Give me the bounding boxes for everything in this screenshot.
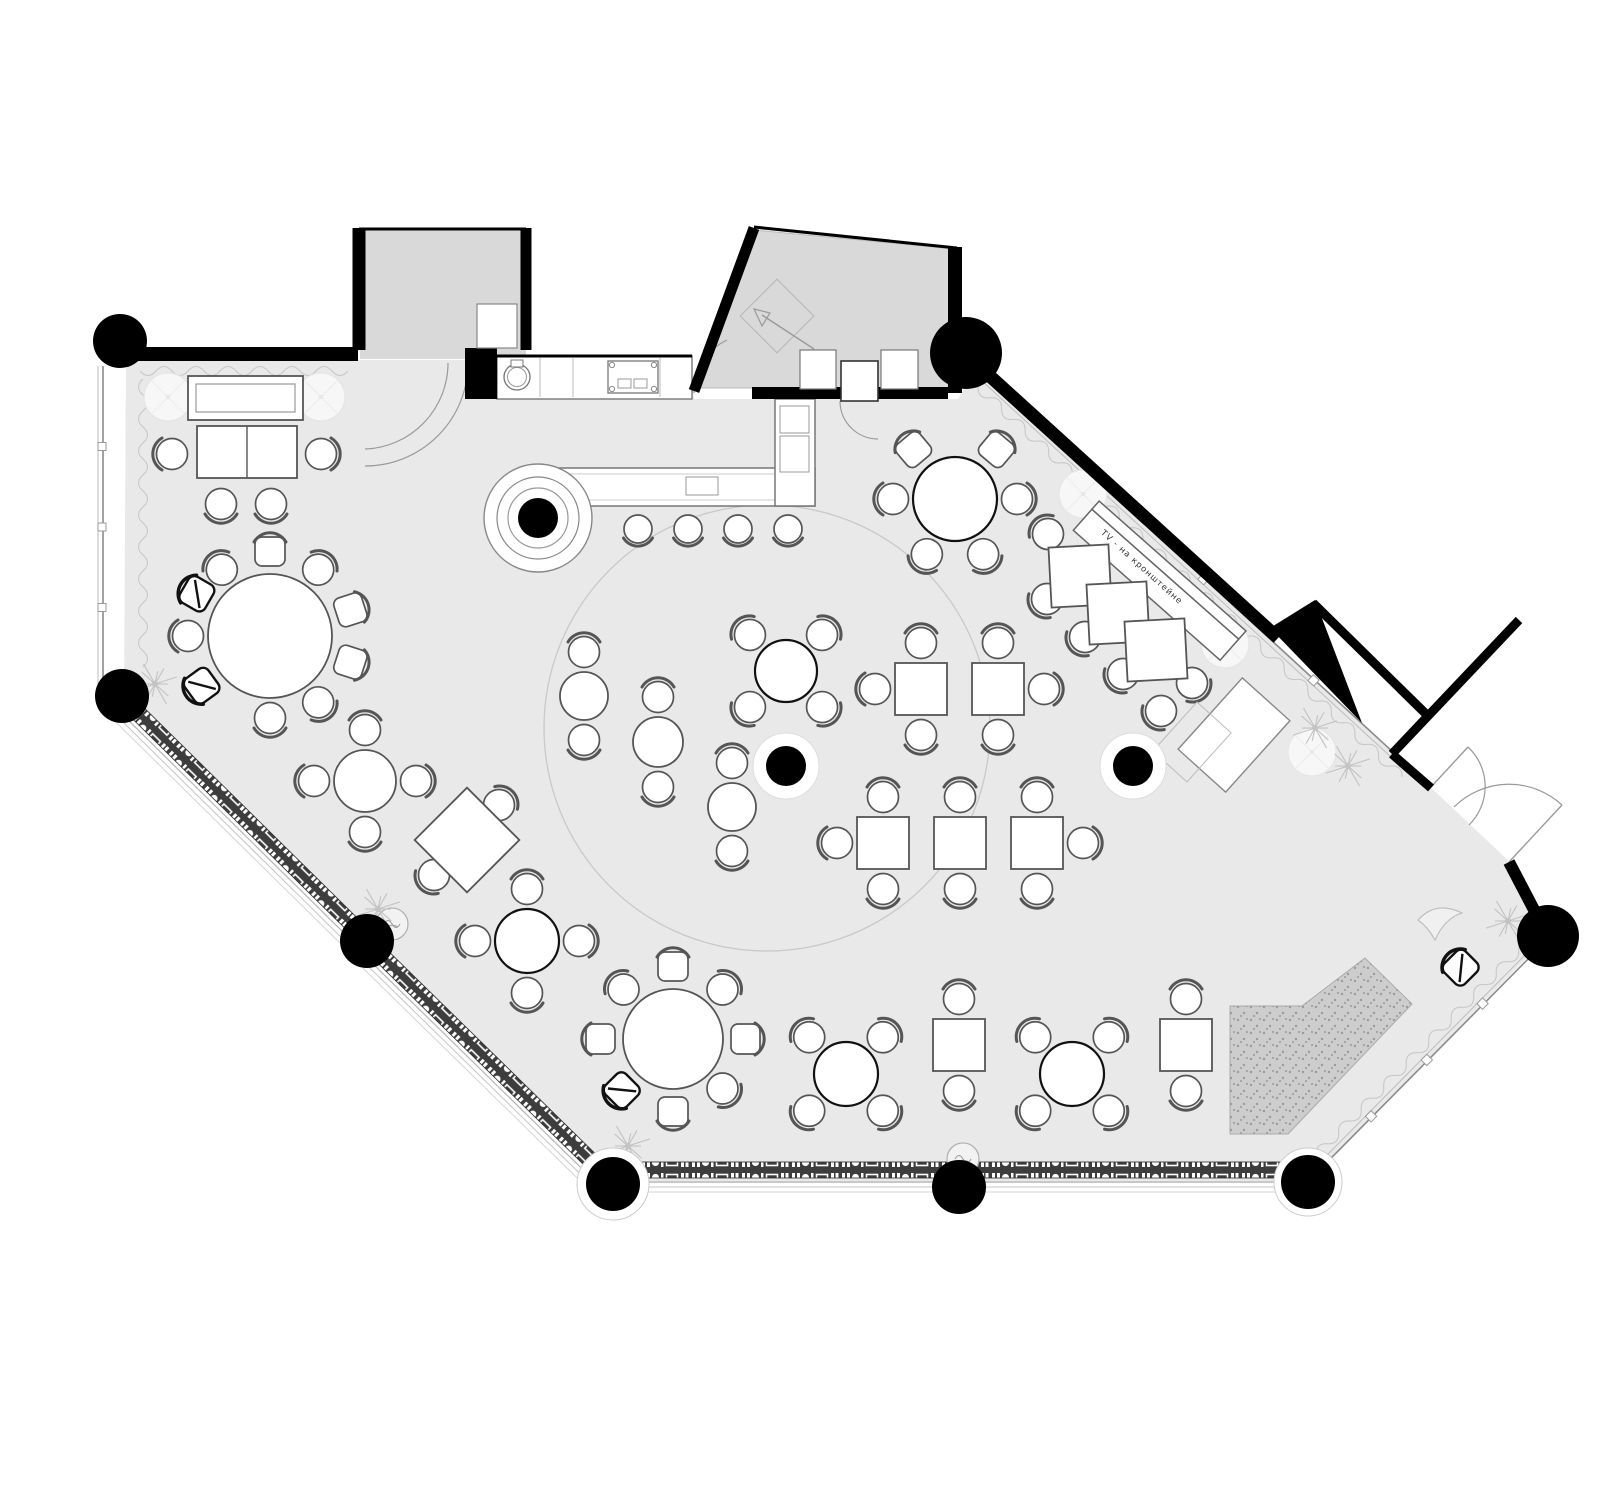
armchair	[657, 1097, 689, 1130]
mullion-tick	[98, 443, 106, 451]
chair-seat	[945, 874, 976, 905]
bar-stool	[724, 515, 753, 546]
bar-stool	[674, 515, 703, 546]
chair	[905, 720, 937, 755]
chair	[1068, 827, 1103, 859]
chair	[867, 874, 899, 909]
chair-seat	[945, 782, 976, 813]
window-glazing	[98, 366, 106, 688]
wall-block	[465, 348, 497, 399]
round-dining-table	[708, 783, 756, 831]
structural-column	[932, 1160, 986, 1214]
chair	[349, 711, 381, 746]
chair-seat	[350, 715, 381, 746]
chair-seat	[401, 766, 432, 797]
chair	[716, 836, 748, 871]
chair-seat	[1171, 984, 1202, 1015]
lamp-center	[166, 395, 170, 399]
square-dining-table	[1011, 817, 1063, 869]
square-dining-table	[895, 663, 947, 715]
chair	[716, 744, 748, 779]
structural-column	[586, 1157, 640, 1211]
stool-seat	[774, 515, 802, 543]
chair	[856, 673, 891, 705]
chair	[1002, 483, 1037, 515]
bar-column	[518, 498, 558, 538]
chair-seat	[717, 748, 748, 779]
door-swing-arc	[1454, 784, 1562, 807]
chair-seat	[512, 978, 543, 1009]
stool-seat	[724, 515, 752, 543]
armchair	[582, 1023, 615, 1055]
door-leaf	[1509, 805, 1562, 862]
round-dining-table	[633, 717, 683, 767]
square-dining-table	[933, 1019, 985, 1071]
chair	[944, 778, 976, 813]
chair	[153, 438, 188, 470]
chair-seat	[256, 489, 287, 520]
bar-stool	[774, 515, 803, 546]
chair	[306, 438, 341, 470]
lamp-center	[1081, 492, 1085, 496]
chair	[642, 678, 674, 713]
chair-seat	[569, 725, 600, 756]
chair	[867, 778, 899, 813]
door-swing-arc	[1468, 747, 1485, 825]
chair	[982, 720, 1014, 755]
bar-tray	[686, 477, 718, 495]
round-dining-table	[1040, 1042, 1104, 1106]
chair	[905, 624, 937, 659]
structural-column	[95, 669, 149, 723]
chair-seat	[1022, 874, 1053, 905]
chair	[564, 925, 599, 957]
chair	[568, 633, 600, 668]
chair	[401, 765, 436, 797]
chair	[511, 978, 543, 1013]
wall-segment	[1392, 620, 1519, 754]
lamp-center	[319, 395, 323, 399]
chair-seat	[1171, 1076, 1202, 1107]
chair	[349, 817, 381, 852]
bar-shelf	[780, 406, 809, 433]
chair	[1021, 778, 1053, 813]
chair-seat	[157, 439, 188, 470]
chair	[1170, 980, 1202, 1015]
structural-column	[930, 317, 1002, 389]
chair-seat	[255, 537, 285, 566]
chair-seat	[944, 1076, 975, 1107]
chair-seat	[983, 628, 1014, 659]
round-dining-table	[623, 989, 723, 1089]
entrance-door-leaf	[841, 361, 878, 401]
ceiling-lamp-icon	[144, 373, 192, 421]
door-leaf	[1431, 747, 1468, 787]
chair	[943, 980, 975, 1015]
lamp-center	[1310, 750, 1314, 754]
stool-seat	[674, 515, 702, 543]
chair-seat	[173, 621, 204, 652]
chair-seat	[944, 984, 975, 1015]
floor-plan-canvas: TV - на кронштейне	[40, 16, 1600, 1469]
chair	[254, 703, 286, 738]
chair-seat	[868, 782, 899, 813]
chair-seat	[299, 766, 330, 797]
alcove-cabinet	[477, 304, 517, 348]
round-dining-table	[208, 574, 332, 698]
round-dining-table	[560, 672, 608, 720]
entry-bench	[800, 350, 836, 389]
sofa	[188, 376, 303, 420]
chair-seat	[512, 874, 543, 905]
square-dining-table	[934, 817, 986, 869]
chair-seat	[206, 489, 237, 520]
chair	[511, 870, 543, 905]
chair-seat	[860, 674, 891, 705]
armchair	[731, 1023, 764, 1055]
structural-column	[766, 746, 806, 786]
chair-seat	[460, 926, 491, 957]
chair-seat	[906, 628, 937, 659]
chair-seat	[643, 772, 674, 803]
range-equipment	[608, 361, 658, 393]
chair-seat	[586, 1024, 615, 1054]
chair	[818, 827, 853, 859]
round-dining-table	[334, 750, 396, 812]
chair-seat	[658, 1097, 688, 1126]
chair-seat	[1068, 828, 1099, 859]
chair-seat	[569, 637, 600, 668]
chair	[456, 925, 491, 957]
chair-seat	[822, 828, 853, 859]
chair-seat	[1029, 674, 1060, 705]
round-dining-table	[814, 1042, 878, 1106]
chair-seat	[564, 926, 595, 957]
mullion-tick	[98, 604, 106, 612]
round-dining-table	[755, 640, 817, 702]
chair	[295, 765, 330, 797]
structural-column	[1517, 905, 1579, 967]
chair-seat	[983, 720, 1014, 751]
faucet	[511, 360, 523, 367]
chair	[568, 725, 600, 760]
chair-seat	[306, 439, 337, 470]
round-dining-table	[495, 909, 559, 973]
structural-column	[340, 914, 394, 968]
chair	[944, 874, 976, 909]
chair	[1029, 673, 1064, 705]
chair	[874, 483, 909, 515]
bar-stool	[624, 515, 653, 546]
chair-seat	[878, 484, 909, 515]
square-dining-table	[1160, 1019, 1212, 1071]
stool-seat	[624, 515, 652, 543]
square-dining-table	[857, 817, 909, 869]
square-dining-table	[972, 663, 1024, 715]
banquette-table	[1124, 618, 1187, 681]
chair-seat	[717, 836, 748, 867]
chair-seat	[868, 874, 899, 905]
structural-column	[1281, 1155, 1335, 1209]
ceiling-lamp-icon	[1288, 728, 1336, 776]
chair	[255, 489, 287, 524]
chair-seat	[255, 703, 286, 734]
armchair	[254, 533, 286, 566]
chair-seat	[1002, 484, 1033, 515]
chair	[642, 772, 674, 807]
bar-shelf	[780, 436, 809, 472]
chair-seat	[350, 817, 381, 848]
chair	[169, 620, 204, 652]
floor-plan: TV - на кронштейне	[40, 16, 1600, 1469]
mullion-tick	[98, 523, 106, 531]
chair-seat	[1022, 782, 1053, 813]
chair	[1170, 1076, 1202, 1111]
entry-bench	[881, 350, 918, 389]
armchair	[657, 948, 689, 981]
chair-seat	[906, 720, 937, 751]
chair	[205, 489, 237, 524]
chair-seat	[731, 1024, 760, 1054]
structural-column	[93, 314, 147, 368]
chair	[1021, 874, 1053, 909]
chair-seat	[643, 682, 674, 713]
round-dining-table	[913, 457, 997, 541]
chair-seat	[658, 952, 688, 981]
ceiling-lamp-icon	[297, 373, 345, 421]
structural-column	[1113, 746, 1153, 786]
chair	[982, 624, 1014, 659]
chair	[943, 1076, 975, 1111]
